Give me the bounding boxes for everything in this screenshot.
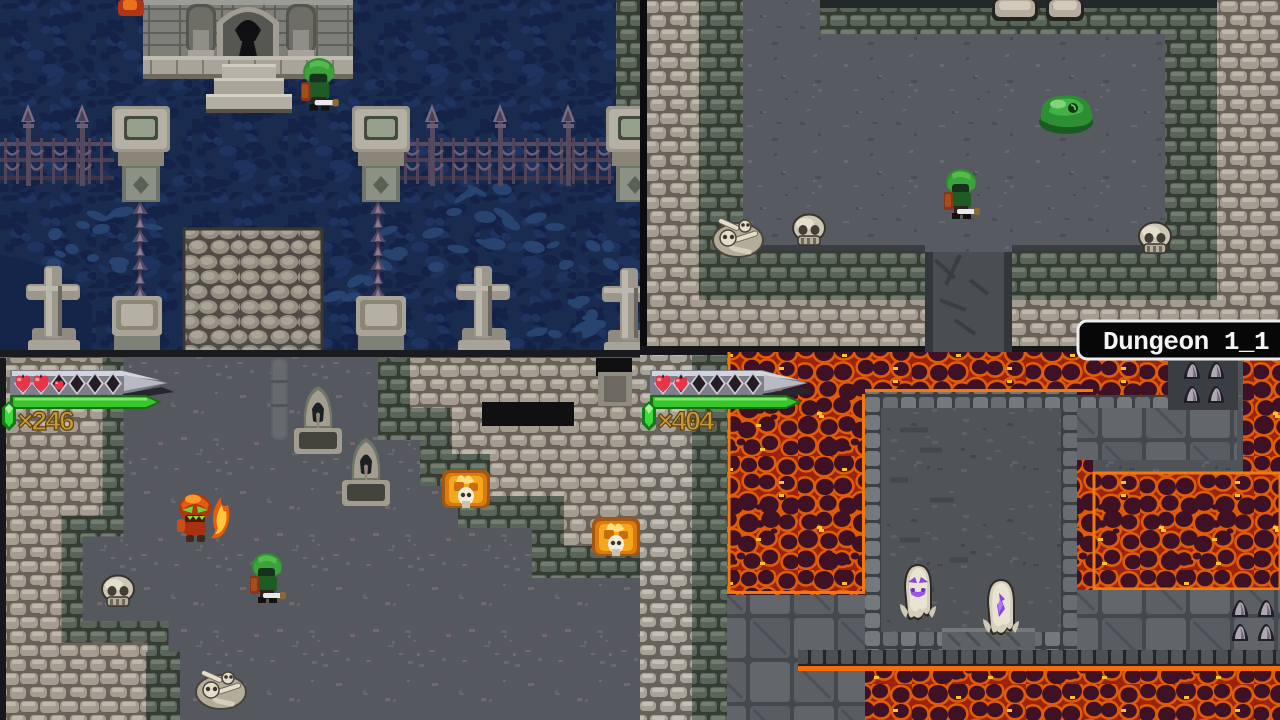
svg-text:Dungeon 1_1: Dungeon 1_1	[1103, 327, 1269, 357]
svg-text:×404: ×404	[657, 408, 714, 439]
svg-text:×246: ×246	[17, 408, 74, 439]
